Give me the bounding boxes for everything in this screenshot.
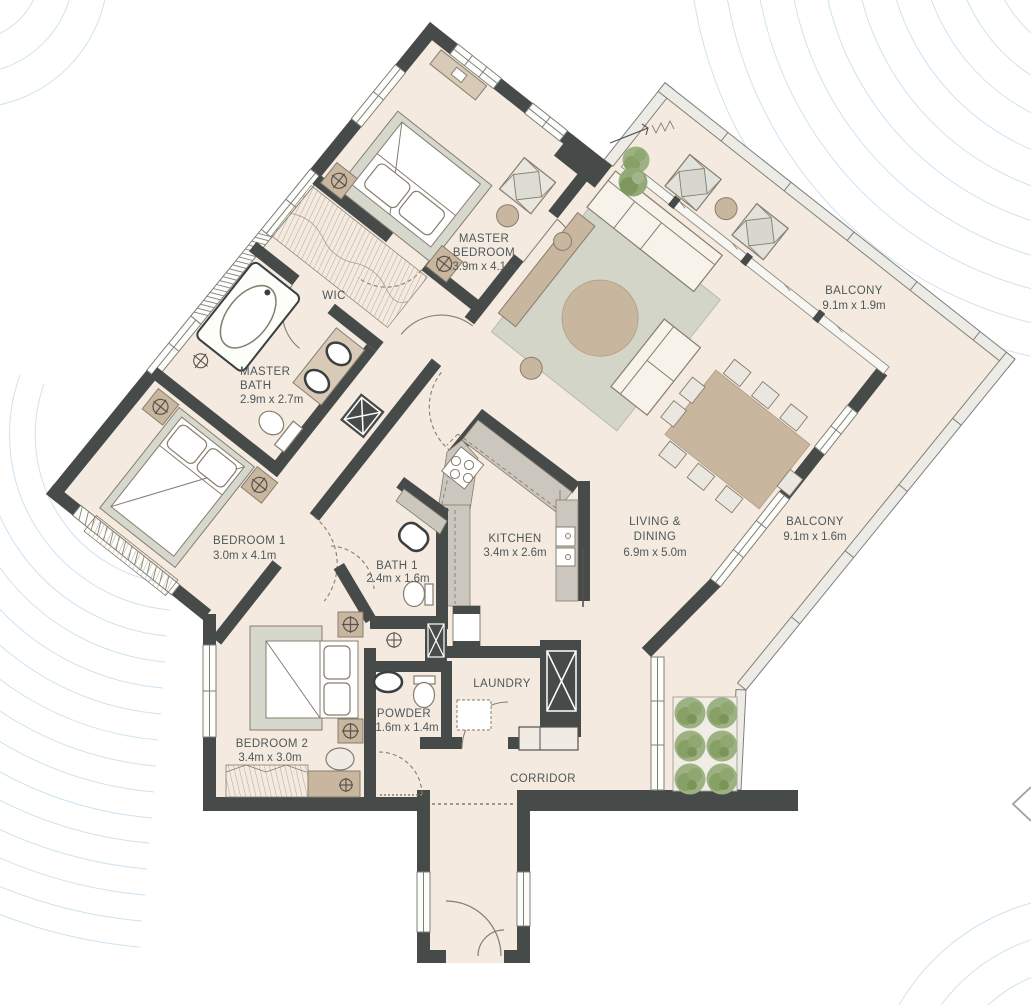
svg-text:MASTER: MASTER [240, 366, 290, 378]
svg-text:BEDROOM 2: BEDROOM 2 [236, 738, 309, 750]
svg-text:1.6m x 1.4m: 1.6m x 1.4m [375, 722, 438, 734]
svg-text:6.9m x 5.0m: 6.9m x 5.0m [623, 547, 686, 559]
svg-text:BATH: BATH [240, 380, 271, 392]
svg-text:WIC: WIC [322, 290, 346, 302]
svg-text:BALCONY: BALCONY [825, 285, 883, 297]
svg-text:3.4m x 2.6m: 3.4m x 2.6m [483, 547, 546, 559]
svg-text:BEDROOM 1: BEDROOM 1 [213, 535, 286, 547]
svg-text:POWDER: POWDER [377, 708, 431, 720]
svg-text:9.1m x 1.9m: 9.1m x 1.9m [822, 300, 885, 312]
svg-text:BEDROOM: BEDROOM [453, 247, 515, 259]
svg-text:9.1m x 1.6m: 9.1m x 1.6m [783, 531, 846, 543]
svg-text:MASTER: MASTER [459, 233, 509, 245]
svg-text:BALCONY: BALCONY [786, 516, 844, 528]
svg-text:3.9m x 4.1m: 3.9m x 4.1m [452, 261, 515, 273]
svg-text:3.0m x 4.1m: 3.0m x 4.1m [213, 550, 276, 562]
svg-text:DINING: DINING [634, 531, 677, 543]
svg-text:CORRIDOR: CORRIDOR [510, 773, 576, 785]
svg-text:BATH 1: BATH 1 [376, 560, 418, 572]
svg-text:2.4m x 1.6m: 2.4m x 1.6m [366, 573, 429, 585]
svg-text:LAUNDRY: LAUNDRY [473, 678, 531, 690]
svg-text:3.4m x 3.0m: 3.4m x 3.0m [238, 752, 301, 764]
svg-text:LIVING &: LIVING & [629, 516, 681, 528]
svg-text:2.9m x 2.7m: 2.9m x 2.7m [240, 394, 303, 406]
svg-text:KITCHEN: KITCHEN [488, 533, 541, 545]
